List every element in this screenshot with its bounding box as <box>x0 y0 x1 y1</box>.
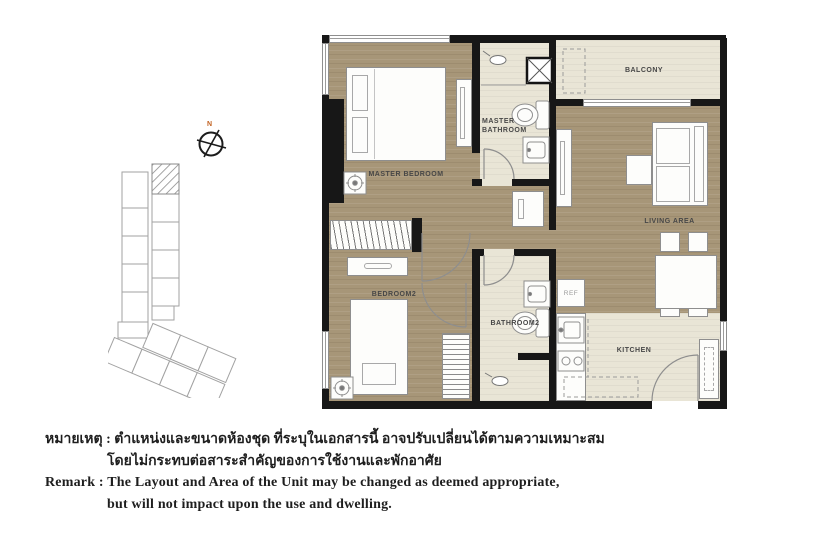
door-gap <box>482 179 512 186</box>
label-bedroom2: BEDROOM2 <box>344 290 444 299</box>
pillow <box>352 75 368 111</box>
coffee-table <box>626 155 652 185</box>
tall-cabinet-inner <box>704 347 714 391</box>
label-bathroom2: BATHROOM2 <box>479 319 551 328</box>
sofa-back <box>694 126 704 202</box>
wall <box>691 99 720 106</box>
master-bathroom-floor <box>480 42 549 180</box>
dining-chair <box>688 232 708 252</box>
wall-stub <box>518 353 550 360</box>
wall-stub <box>412 218 422 252</box>
wall <box>720 38 727 407</box>
refrigerator-label: REF <box>564 290 579 297</box>
floor-plan-page: N <box>0 0 820 550</box>
highlighted-unit <box>152 164 179 194</box>
wall <box>549 35 556 230</box>
label-master-bedroom: MASTER BEDROOM <box>350 170 462 179</box>
door-gap <box>484 249 514 256</box>
wall <box>555 99 583 106</box>
dining-table <box>655 255 717 309</box>
hallway-cabinet-inner <box>518 199 524 219</box>
closet-hangers <box>330 220 412 250</box>
entry-door-gap <box>652 401 698 409</box>
label-balcony: BALCONY <box>600 66 688 75</box>
hallway-cabinet <box>512 191 544 227</box>
sofa-cushion <box>656 128 690 164</box>
dresser-inner <box>364 263 392 269</box>
refrigerator-box: REF <box>557 279 585 307</box>
sofa-cushion <box>656 166 690 202</box>
wardrobe-master-inner <box>460 87 465 139</box>
bathroom2-floor <box>480 256 549 401</box>
bed2-footer <box>362 363 396 385</box>
window <box>329 35 450 43</box>
kitchen-counter <box>556 313 586 401</box>
window <box>322 43 329 95</box>
bed-line <box>374 69 375 159</box>
wall <box>556 35 726 40</box>
remark-thai-line1: หมายเหตุ : ตำแหน่งและขนาดห้องชุด ที่ระบุ… <box>45 428 605 450</box>
wall <box>448 35 556 43</box>
wardrobe-2 <box>442 333 470 399</box>
label-living-area: LIVING AREA <box>622 217 717 226</box>
window <box>720 321 727 351</box>
remark-english-line2: but will not impact upon the use and dwe… <box>107 497 392 513</box>
pillow <box>352 117 368 153</box>
label-kitchen: KITCHEN <box>584 346 684 355</box>
label-master-bathroom: MASTER BATHROOM <box>482 117 540 135</box>
tv-cabinet-inner <box>560 141 565 195</box>
remark-english-line1: Remark : The Layout and Area of the Unit… <box>45 475 560 491</box>
wall <box>549 249 556 407</box>
wall <box>472 35 480 153</box>
building-key-plan <box>108 158 260 398</box>
compass-icon: N <box>192 116 230 162</box>
wall <box>472 249 480 407</box>
north-label: N <box>207 121 212 128</box>
unit-floor-plan: REF <box>322 33 730 415</box>
wall-shaft <box>326 99 344 203</box>
remark-thai-line2: โดยไม่กระทบต่อสาระสำคัญของการใช้งานและพั… <box>107 450 442 472</box>
balcony-sliding-door <box>583 99 691 107</box>
dining-chair <box>660 232 680 252</box>
window <box>322 331 329 389</box>
